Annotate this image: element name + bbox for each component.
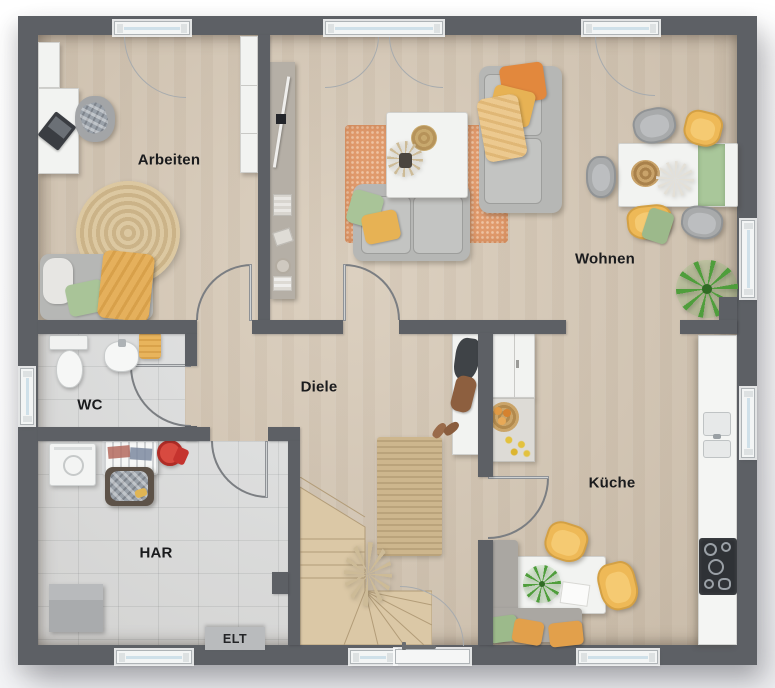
floor-plan-canvas: ELT Arbeiten Wohnen Diele WC HAR Küche [0,0,775,688]
room-label-arbeiten: Arbeiten [138,152,200,169]
wall-har-top-right [268,427,300,441]
toilet-tank [49,335,88,350]
sofa-vertical [479,66,562,213]
wall-har-top-left [38,427,210,441]
elt-unit: ELT [205,627,265,650]
window-right-living [741,220,755,298]
wc-door-leaf [130,364,191,367]
bag [449,374,478,414]
dried-plant [344,542,392,606]
office-wardrobe [240,36,258,173]
wall-wc-right-upper [185,334,197,366]
coffee-table [386,112,468,198]
dining-chair-gray [586,156,616,198]
daybed [40,254,153,320]
corner-bench [487,608,582,642]
window-top-living-right [583,21,659,35]
dining-table [618,143,738,207]
window-right-kitchen [741,388,755,458]
kitchen-counter [698,335,737,645]
wall-hall-top [252,320,343,334]
entrance-door [395,649,470,664]
wall-living-kitchen-left [399,320,566,334]
wall-hall-kitchen-lower [478,540,493,645]
wc-sink [104,341,139,372]
window-left-wc [20,368,34,425]
elt-label: ELT [223,632,247,646]
washing-machine [49,443,96,486]
wall-hall-kitchen-upper [478,333,493,477]
living-shelf [270,62,295,299]
entrance-sidelight [350,650,396,664]
red-bucket [157,440,187,469]
window-top-office [114,21,190,35]
room-label-diele: Diele [301,379,338,396]
office-tall-cabinet [38,42,60,88]
office-chair [75,96,115,142]
door-handle [402,645,436,649]
wall-stub-har [272,572,288,594]
window-bottom-kitchen [578,650,658,664]
kitchen-sink [701,410,734,462]
shoes [435,420,459,440]
laundry-basket [105,467,154,506]
room-label-wc: WC [77,397,102,414]
room-label-har: HAR [139,545,172,562]
wall-living-kitchen-right [680,320,737,334]
wall-office-living [258,35,270,323]
cooktop [699,538,737,595]
flowers-yellow [498,431,534,461]
storage-box [49,584,103,632]
kitchen-table [514,556,606,614]
window-top-living-left [325,21,443,35]
har-door-leaf [265,441,268,498]
hallway-runner-rug [377,437,442,556]
kitchen-door-leaf [488,476,549,479]
office-door-leaf [249,264,252,321]
room-label-wohnen: Wohnen [575,251,635,268]
window-bottom-har [116,650,192,664]
wall-wc-top [38,320,197,334]
room-label-kueche: Küche [589,475,636,492]
towel-yellow [139,332,161,359]
toilet-bowl [56,350,83,388]
wall-stair [288,441,300,645]
living-door-leaf [343,264,346,321]
